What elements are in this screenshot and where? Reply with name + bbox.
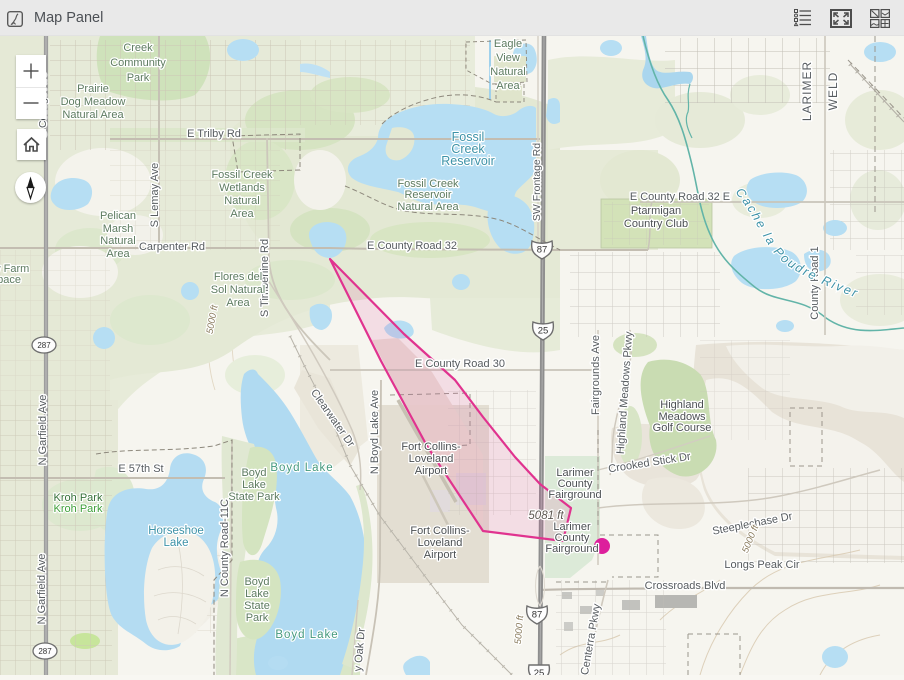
svg-text:Boyd Lake: Boyd Lake	[270, 462, 333, 474]
svg-text:25: 25	[538, 326, 549, 337]
svg-text:Natural: Natural	[224, 195, 259, 207]
svg-text:Community: Community	[110, 57, 166, 69]
svg-text:Kroh Park: Kroh Park	[54, 503, 103, 515]
svg-text:E County Road 30: E County Road 30	[415, 358, 505, 370]
svg-text:Airport: Airport	[424, 549, 456, 561]
svg-text:Fort Collins-: Fort Collins-	[401, 441, 461, 453]
svg-text:Natural Area: Natural Area	[397, 201, 459, 213]
svg-text:Longs Peak Cir: Longs Peak Cir	[724, 559, 800, 571]
svg-text:Natural: Natural	[100, 235, 135, 247]
svg-text:Loveland: Loveland	[409, 453, 454, 465]
svg-text:View: View	[496, 52, 520, 64]
svg-text:State: State	[244, 600, 270, 612]
svg-text:Airport: Airport	[415, 465, 447, 477]
svg-text:Fort Collins-: Fort Collins-	[410, 525, 470, 537]
svg-text:E County Road 32 E: E County Road 32 E	[630, 191, 730, 203]
svg-text:Park: Park	[127, 72, 150, 84]
svg-text:Creek: Creek	[123, 42, 153, 54]
svg-text:Flores del: Flores del	[214, 271, 262, 283]
svg-text:Horseshoe: Horseshoe	[148, 525, 204, 537]
svg-text:N Boyd Lake Ave: N Boyd Lake Ave	[369, 390, 381, 474]
svg-text:287: 287	[37, 341, 51, 350]
svg-text:Ptarmigan: Ptarmigan	[631, 205, 681, 217]
svg-text:E County Road 32: E County Road 32	[367, 240, 457, 252]
svg-text:25: 25	[534, 668, 545, 675]
svg-text:Marsh: Marsh	[103, 223, 134, 235]
svg-text:LARIMER: LARIMER	[800, 61, 814, 121]
svg-text:E Trilby Rd: E Trilby Rd	[187, 128, 241, 140]
svg-text:Area: Area	[226, 297, 250, 309]
svg-text:Prairie: Prairie	[77, 83, 109, 95]
svg-text:Eagle: Eagle	[494, 38, 522, 50]
svg-text:Area: Area	[106, 248, 130, 260]
svg-text:Dog Meadow: Dog Meadow	[61, 96, 126, 108]
svg-text:Lake: Lake	[245, 588, 269, 600]
svg-text:Crossroads Blvd: Crossroads Blvd	[645, 580, 726, 592]
svg-text:Area: Area	[496, 80, 520, 92]
svg-text:Fairground: Fairground	[545, 543, 598, 555]
svg-text:S Lemay Ave: S Lemay Ave	[149, 163, 161, 228]
svg-text:N Garfield Ave: N Garfield Ave	[36, 554, 48, 625]
svg-text:N County Road-11C: N County Road-11C	[219, 499, 231, 597]
svg-text:SW Frontage Rd: SW Frontage Rd	[531, 143, 543, 221]
svg-text:Fairground: Fairground	[548, 489, 601, 501]
svg-text:5081 ft: 5081 ft	[528, 510, 564, 522]
svg-text:Lake: Lake	[164, 537, 189, 549]
svg-text:Reservoir: Reservoir	[441, 154, 495, 168]
svg-text:pace: pace	[0, 274, 21, 286]
svg-text:Carpenter Rd: Carpenter Rd	[139, 241, 205, 253]
svg-text:Area: Area	[230, 208, 254, 220]
svg-text:Wetlands: Wetlands	[219, 182, 265, 194]
svg-text:Pelican: Pelican	[100, 210, 136, 222]
svg-text:Country Club: Country Club	[624, 218, 688, 230]
svg-text:Fossil Creek: Fossil Creek	[211, 169, 273, 181]
svg-text:Reservoir: Reservoir	[404, 189, 451, 201]
svg-text:87: 87	[537, 245, 548, 256]
svg-text:Boyd Lake: Boyd Lake	[275, 629, 338, 641]
svg-text:87: 87	[532, 610, 543, 621]
svg-text:E 57th St: E 57th St	[118, 463, 163, 475]
svg-text:287: 287	[38, 647, 52, 656]
svg-text:Natural Area: Natural Area	[62, 109, 124, 121]
svg-text:Loveland: Loveland	[418, 537, 463, 549]
svg-text:Golf Course: Golf Course	[653, 422, 712, 434]
svg-text:Boyd: Boyd	[244, 576, 269, 588]
svg-text:N Garfield Ave: N Garfield Ave	[37, 395, 49, 466]
svg-text:Boyd: Boyd	[241, 467, 266, 479]
svg-text:WELD: WELD	[826, 72, 840, 111]
svg-text:Fairgrounds Ave: Fairgrounds Ave	[590, 335, 602, 415]
svg-text:Natural: Natural	[490, 66, 525, 78]
svg-text:Lake: Lake	[242, 479, 266, 491]
svg-text:Highland: Highland	[660, 399, 703, 411]
svg-text:State Park: State Park	[228, 491, 280, 503]
svg-text:Park: Park	[246, 612, 269, 624]
svg-text:Sol Natural: Sol Natural	[211, 284, 265, 296]
